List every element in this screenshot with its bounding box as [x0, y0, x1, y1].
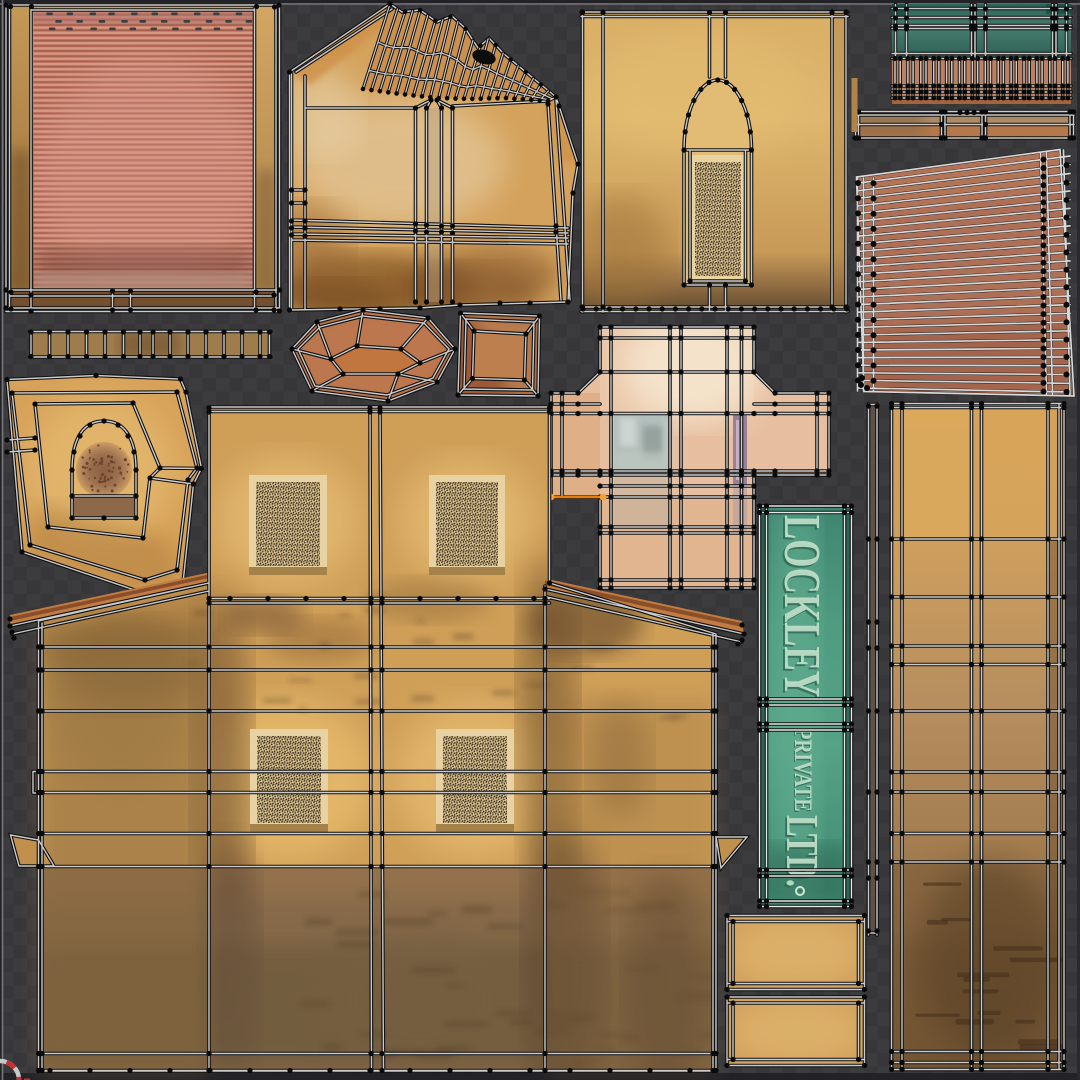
- svg-text:PRIVATE: PRIVATE: [789, 728, 816, 812]
- svg-text:LOCKLEY: LOCKLEY: [773, 515, 830, 697]
